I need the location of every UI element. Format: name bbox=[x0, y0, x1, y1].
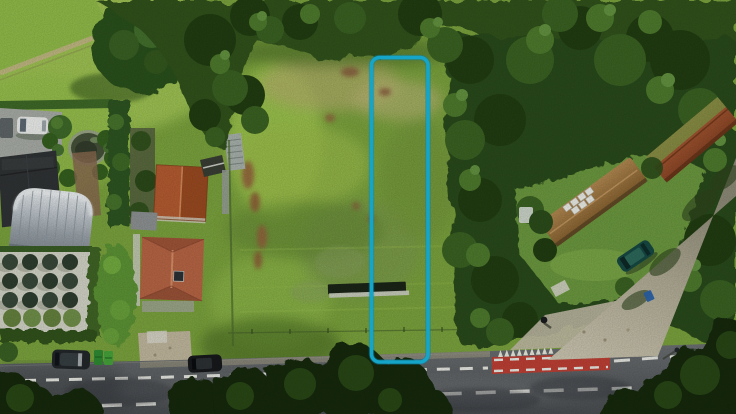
aerial-photo-canvas bbox=[0, 0, 736, 414]
photo-grain-light bbox=[0, 0, 736, 414]
aerial-photo bbox=[0, 0, 736, 414]
